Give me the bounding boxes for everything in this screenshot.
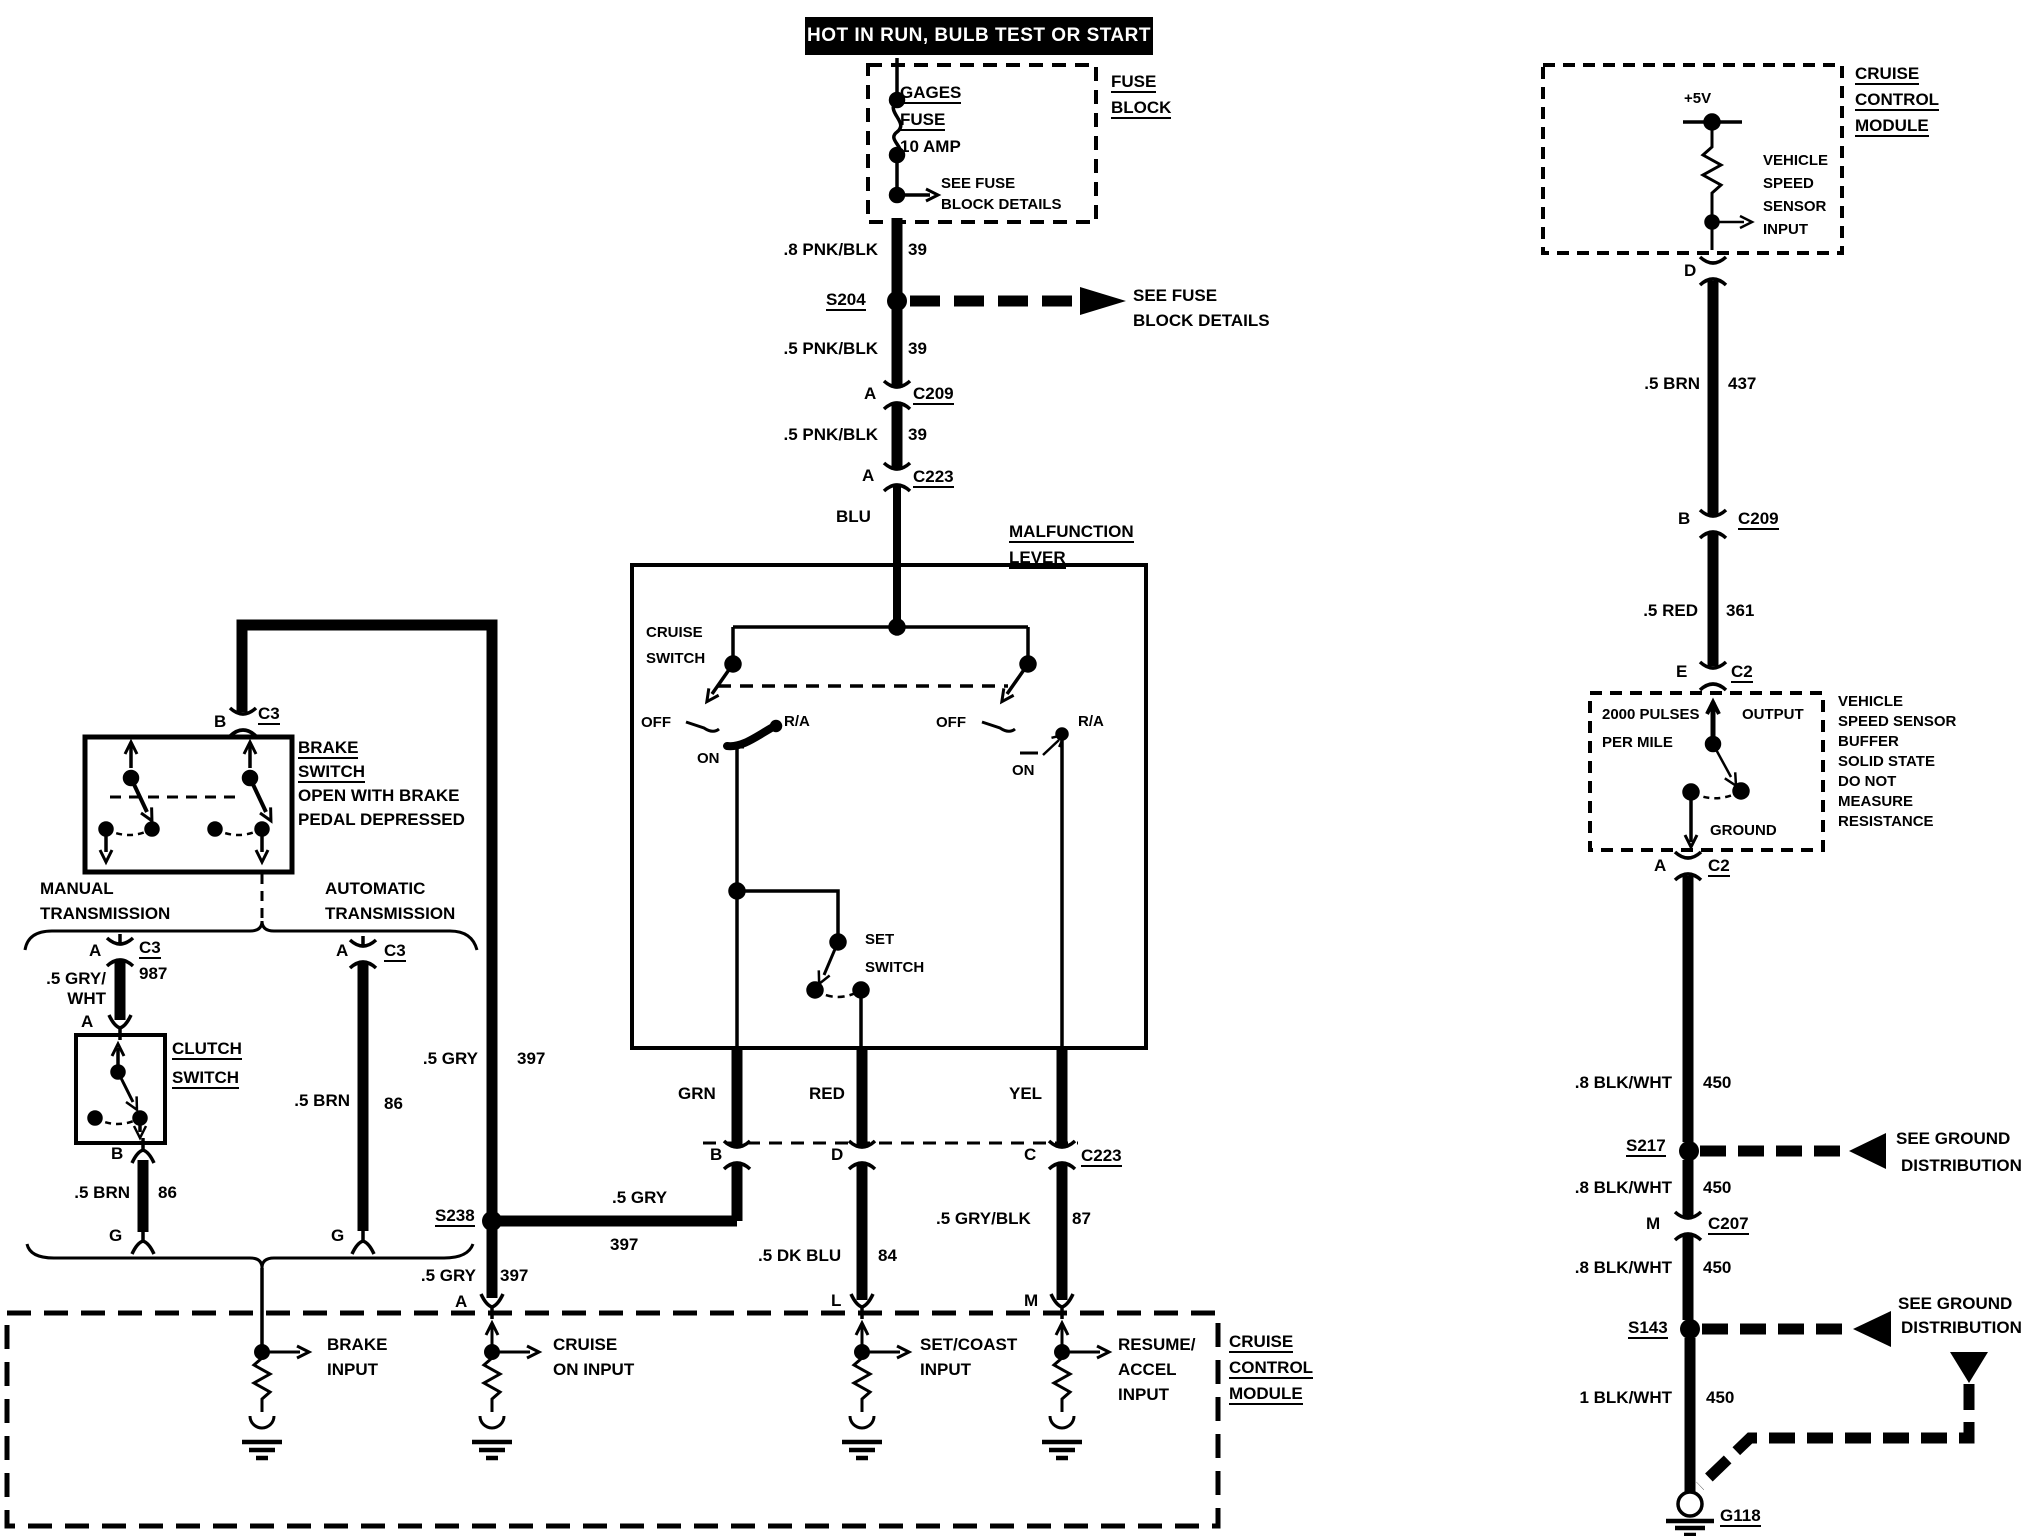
circuit-number: 397 — [610, 1235, 638, 1255]
switch-blade-2 — [1007, 664, 1028, 694]
wire-label: .5 GRY — [396, 1266, 476, 1286]
pin-label-l: L — [831, 1291, 841, 1311]
wire-label: .5 DK BLU — [758, 1246, 841, 1266]
on-label-1: ON — [697, 750, 720, 769]
off-label-2: OFF — [936, 714, 966, 733]
wire-label: .5 GRY/BLK — [936, 1209, 1031, 1229]
see-ground-ref-1: SEE GROUND — [1896, 1129, 2010, 1149]
pin-label-b-clutch: B — [111, 1144, 123, 1164]
reference-arrows — [1080, 287, 1988, 1383]
circuit-number: 437 — [1728, 374, 1756, 394]
connector-c209-right-icon — [1700, 510, 1726, 538]
cruise-switch-label: CRUISE — [646, 624, 703, 643]
wire-blk-wht-450 — [1688, 876, 1690, 1492]
clutch-switch-internals — [89, 1044, 146, 1138]
buffer-pulses-label: 2000 PULSES — [1602, 706, 1700, 725]
connector-c2-label: C2 — [1731, 662, 1753, 683]
connector-c223-d-icon — [849, 1141, 875, 1169]
terminal-g-right-icon — [352, 1229, 374, 1254]
connector-c223-icon — [884, 463, 910, 491]
see-fuse-note2: BLOCK DETAILS — [941, 196, 1062, 215]
pin-label-m: M — [1024, 1291, 1038, 1311]
wire-label: .5 BRN — [62, 1183, 130, 1203]
wire-g118-ref-dashed — [1700, 1384, 1969, 1486]
connector-c207-icon — [1675, 1212, 1701, 1240]
connector-c209-icon — [884, 381, 910, 409]
lever-thick-blade — [727, 727, 773, 746]
buffer-ground-label: GROUND — [1710, 822, 1777, 841]
ground-icon — [242, 1416, 282, 1458]
manual-trans-label: MANUAL — [40, 879, 114, 899]
blade-arrow-icon — [260, 807, 276, 823]
pin-label: A — [862, 466, 874, 486]
malfunction-lever-internals — [686, 620, 1068, 1046]
ccm-name3: MODULE — [1229, 1384, 1303, 1405]
wire-label: .5 BRN — [1632, 374, 1700, 394]
resistor-icon — [1054, 1358, 1070, 1412]
vss-input-label2: SPEED — [1763, 175, 1814, 194]
circuit-number: 397 — [517, 1049, 545, 1069]
ground-icon — [1042, 1416, 1082, 1458]
manual-trans-label2: TRANSMISSION — [40, 904, 170, 924]
brake-switch-note: OPEN WITH BRAKE — [298, 786, 460, 806]
see-ground-ref-2b: DISTRIBUTION — [1901, 1318, 2022, 1338]
connector-c3-label: C3 — [258, 704, 280, 725]
set-switch-label2: SWITCH — [865, 959, 924, 978]
brake-switch-internals — [100, 742, 276, 862]
auto-trans-label2: TRANSMISSION — [325, 904, 455, 924]
circuit-number: 397 — [500, 1266, 528, 1286]
wire-label: .8 BLK/WHT — [1552, 1178, 1672, 1198]
circuit-number-987: 987 — [139, 964, 167, 984]
resume-accel-input-label: RESUME/ — [1118, 1335, 1195, 1355]
resistor-icon — [854, 1358, 870, 1412]
fuse-block-title2: BLOCK — [1111, 98, 1171, 119]
brake-blade-1 — [131, 778, 147, 812]
wire-label: .8 BLK/WHT — [1552, 1073, 1672, 1093]
ground-feed-arrow-icon — [1950, 1352, 1988, 1383]
pin-label-d: D — [831, 1145, 843, 1165]
wire-label-yel: YEL — [1009, 1084, 1042, 1104]
vss-input-label: VEHICLE — [1763, 152, 1828, 171]
brake-switch-title: BRAKE — [298, 738, 358, 759]
brake-switch-note2: PEDAL DEPRESSED — [298, 810, 465, 830]
connector-c3-auto-icon — [350, 940, 376, 968]
pin-label-a: A — [1654, 856, 1666, 876]
malfunction-title2: LEVER — [1009, 548, 1066, 569]
wire-label: .5 PNK/BLK — [735, 425, 878, 445]
buffer-note3: BUFFER — [1838, 733, 1899, 752]
ra-label-2: R/A — [1078, 713, 1104, 732]
component-boxes — [7, 65, 1842, 1526]
ground-ring-icon — [1678, 1492, 1702, 1516]
connector-c2-a-label: C2 — [1708, 856, 1730, 877]
pin-label-b: B — [710, 1145, 722, 1165]
g118-ground — [1666, 1492, 1714, 1535]
ground-bars-icon — [1666, 1521, 1714, 1535]
malfunction-title: MALFUNCTION — [1009, 522, 1134, 543]
junction-dot — [891, 189, 904, 202]
pin-label-g-left: G — [109, 1226, 122, 1246]
pin-label-c: C — [1024, 1145, 1036, 1165]
ccm-name2: CONTROL — [1229, 1358, 1313, 1379]
circuit-number: 87 — [1072, 1209, 1091, 1229]
blade-arrow-icon — [126, 1096, 142, 1112]
splice-s238-dot — [482, 1211, 502, 1231]
pin-label-e: E — [1676, 662, 1687, 682]
pin-label-m: M — [1646, 1214, 1660, 1234]
see-fuse-note: SEE FUSE — [941, 175, 1015, 194]
ground-brace — [27, 1244, 473, 1268]
splice-s217-label: S217 — [1626, 1136, 1666, 1157]
resistor-icon — [254, 1358, 270, 1412]
set-feed-line — [737, 891, 838, 937]
circuit-number: 361 — [1726, 601, 1754, 621]
buffer-note7: RESISTANCE — [1838, 813, 1934, 832]
ccm-top-name3: MODULE — [1855, 116, 1929, 137]
buffer-note2: SPEED SENSOR — [1838, 713, 1956, 732]
see-fuse-ref: SEE FUSE — [1133, 286, 1217, 306]
connector-c3-brake-icon — [230, 708, 256, 736]
ccm-top-internals — [1683, 115, 1752, 250]
brake-up-lines — [131, 745, 250, 768]
see-fuse-ref2: BLOCK DETAILS — [1133, 311, 1270, 331]
pin-label-a-manual: A — [89, 941, 101, 961]
v5-label: +5V — [1684, 90, 1711, 109]
auto-trans-label: AUTOMATIC — [325, 879, 425, 899]
wire-label: .5 PNK/BLK — [735, 339, 878, 359]
off-label-1: OFF — [641, 714, 671, 733]
circuit-number: 86 — [384, 1094, 403, 1114]
wire-label: .5 GRY — [408, 1049, 478, 1069]
ra-contact-1 — [772, 722, 781, 731]
resistor-icon — [484, 1358, 500, 1412]
connector-c3-auto-label: C3 — [384, 941, 406, 962]
connector-c2-a-icon — [1675, 852, 1701, 880]
fuse-rating-label: 10 AMP — [900, 137, 961, 157]
clutch-switch-title2: SWITCH — [172, 1068, 239, 1089]
fuse-name-label: GAGES — [900, 83, 961, 104]
wire-label-grywht2: WHT — [30, 989, 106, 1009]
resistor-icon — [1703, 122, 1721, 250]
buffer-blade — [1713, 744, 1731, 777]
connector-c209-right-label: C209 — [1738, 509, 1779, 530]
fuse-name-label2: FUSE — [900, 110, 945, 131]
pivot-feeds — [733, 627, 1028, 658]
splice-s204-label: S204 — [826, 290, 866, 311]
splices — [482, 291, 1700, 1339]
wire-label: .8 BLK/WHT — [1552, 1258, 1672, 1278]
circuit-number: 84 — [878, 1246, 897, 1266]
connector-c223-c-icon — [1049, 1141, 1075, 1169]
connector-c223-label: C223 — [913, 467, 954, 488]
splice-s204-dot — [887, 291, 907, 311]
terminal-d-icon — [1700, 257, 1726, 285]
brake-blade-2 — [250, 778, 266, 812]
splice-s143-label: S143 — [1628, 1318, 1668, 1339]
ground-g118-label: G118 — [1720, 1506, 1761, 1527]
buffer-pulses-label2: PER MILE — [1602, 734, 1673, 753]
junction-dot — [890, 620, 904, 634]
clutch-blade — [118, 1072, 133, 1102]
connector-c207-label: C207 — [1708, 1214, 1749, 1235]
splice-s238-label: S238 — [435, 1206, 475, 1227]
wire-label-red: RED — [809, 1084, 845, 1104]
vss-input-label4: INPUT — [1763, 221, 1808, 240]
thick-wires — [120, 218, 1969, 1492]
pin-label-d: D — [1684, 261, 1696, 281]
connector-c209-label: C209 — [913, 384, 954, 405]
ccm-name: CRUISE — [1229, 1332, 1293, 1353]
blade-arrow-icon — [141, 807, 157, 823]
connector-c2-e-icon — [1700, 662, 1726, 690]
cruise-on-input-label: CRUISE — [553, 1335, 617, 1355]
set-coast-input-label2: INPUT — [920, 1360, 971, 1380]
connector-c223-b-icon — [724, 1141, 750, 1169]
off-contact-1 — [686, 722, 719, 731]
wire-label-grywht: .5 GRY/ — [30, 969, 106, 989]
circuit-number: 39 — [908, 240, 927, 260]
resume-accel-input-label2: ACCEL — [1118, 1360, 1177, 1380]
cruise-on-input-label2: ON INPUT — [553, 1360, 634, 1380]
circuit-number: 450 — [1706, 1388, 1734, 1408]
buffer-note: VEHICLE — [1838, 693, 1903, 712]
clutch-switch-title: CLUTCH — [172, 1039, 242, 1060]
pin-label-b-brake: B — [214, 712, 226, 732]
connector-c223-row-label: C223 — [1081, 1146, 1122, 1167]
buffer-note4: SOLID STATE — [1838, 753, 1935, 772]
wire-label-grn: GRN — [678, 1084, 716, 1104]
circuit-number: 450 — [1703, 1178, 1731, 1198]
buffer-output-label: OUTPUT — [1742, 706, 1804, 725]
pin-label-a-clutch: A — [81, 1012, 93, 1032]
off-contact-2 — [982, 722, 1015, 731]
fuse-block-title: FUSE — [1111, 72, 1156, 93]
buffer-note6: MEASURE — [1838, 793, 1913, 812]
ccm-top-name: CRUISE — [1855, 64, 1919, 85]
buffer-note5: DO NOT — [1838, 773, 1896, 792]
pin-label: A — [864, 384, 876, 404]
see-ground-ref-1b: DISTRIBUTION — [1901, 1156, 2022, 1176]
wire-label-blu: BLU — [836, 507, 871, 527]
brake-down-lines — [106, 829, 262, 852]
brake-switch-title2: SWITCH — [298, 762, 365, 783]
pin-label-b: B — [1678, 509, 1690, 529]
ground-icon — [842, 1416, 882, 1458]
see-ground-arrow-2-icon — [1853, 1311, 1891, 1347]
circuit-number: 86 — [158, 1183, 177, 1203]
pin-label-g-right: G — [331, 1226, 344, 1246]
connector-c3-manual-icon — [107, 938, 133, 966]
ccm-top-name2: CONTROL — [1855, 90, 1939, 111]
see-fuse-arrow-icon — [1080, 287, 1126, 315]
set-coast-input-label: SET/COAST — [920, 1335, 1017, 1355]
set-switch-label: SET — [865, 931, 894, 950]
circuit-number: 450 — [1703, 1073, 1731, 1093]
resume-accel-input-label3: INPUT — [1118, 1385, 1169, 1405]
splice-s143-dot — [1680, 1319, 1700, 1339]
ra-label-1: R/A — [784, 713, 810, 732]
wire-label: .5 BRN — [282, 1091, 350, 1111]
splice-s217-dot — [1679, 1141, 1699, 1161]
wiring-diagram-page: HOT IN RUN, BULB TEST OR START GAGES FUS… — [0, 0, 2036, 1536]
cruise-switch-label2: SWITCH — [646, 650, 705, 669]
on-label-2: ON — [1012, 762, 1035, 781]
vss-input-label3: SENSOR — [1763, 198, 1826, 217]
banner-hot-in-run: HOT IN RUN, BULB TEST OR START — [805, 17, 1153, 55]
see-ground-ref-2: SEE GROUND — [1898, 1294, 2012, 1314]
brake-input-label2: INPUT — [327, 1360, 378, 1380]
pin-label-a-auto: A — [336, 941, 348, 961]
ground-icon — [472, 1416, 512, 1458]
terminal-g-left-icon — [132, 1229, 154, 1254]
pin-label-a: A — [455, 1292, 467, 1312]
brake-input-label: BRAKE — [327, 1335, 387, 1355]
switch-blade-1 — [712, 664, 733, 694]
connector-c3-manual-label: C3 — [139, 938, 161, 959]
circuit-number: 39 — [908, 339, 927, 359]
ra-blade-2 — [1043, 740, 1059, 755]
wire-label: .5 RED — [1630, 601, 1698, 621]
wire-label: .5 GRY — [612, 1188, 667, 1208]
see-ground-arrow-1-icon — [1849, 1133, 1886, 1169]
wire-label: 1 BLK/WHT — [1556, 1388, 1672, 1408]
circuit-number: 39 — [908, 425, 927, 445]
wire-label: .8 PNK/BLK — [735, 240, 878, 260]
circuit-number: 450 — [1703, 1258, 1731, 1278]
